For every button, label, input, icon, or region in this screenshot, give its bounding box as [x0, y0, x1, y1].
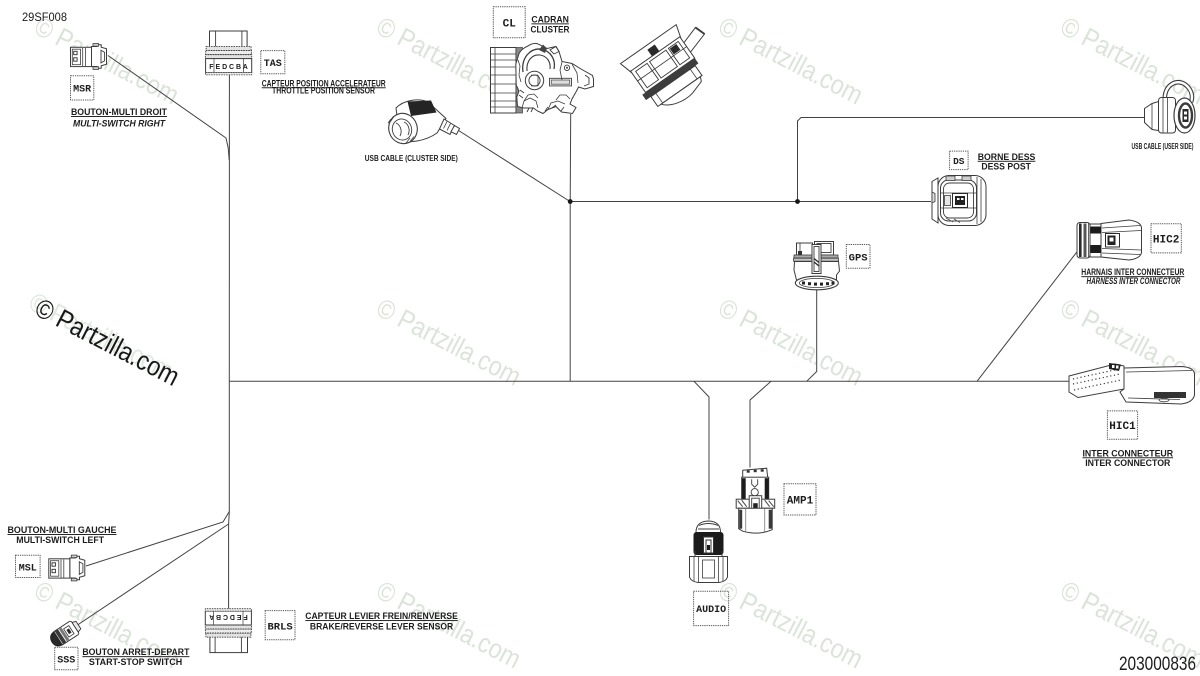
svg-text:F E D C B A: F E D C B A [209, 64, 248, 71]
svg-text:203000836: 203000836 [1119, 654, 1196, 675]
svg-text:BOUTON-MULTI DROIT: BOUTON-MULTI DROIT [71, 107, 167, 118]
svg-text:BRLS: BRLS [267, 621, 292, 633]
svg-text:AMP1: AMP1 [787, 496, 814, 508]
svg-text:HIC2: HIC2 [1153, 235, 1179, 247]
svg-text:USB CABLE (USER SIDE): USB CABLE (USER SIDE) [1132, 142, 1194, 151]
svg-text:GPS: GPS [849, 252, 868, 264]
svg-text:SSS: SSS [57, 655, 75, 666]
svg-text:INTER CONNECTOR: INTER CONNECTOR [1085, 458, 1170, 469]
svg-text:CLUSTER: CLUSTER [531, 24, 570, 35]
svg-text:MSR: MSR [73, 85, 91, 96]
svg-text:HARNESS INTER CONNECTOR: HARNESS INTER CONNECTOR [1087, 276, 1181, 287]
svg-text:CL: CL [503, 19, 517, 31]
svg-text:BRAKE/REVERSE LEVER SENSOR: BRAKE/REVERSE LEVER SENSOR [310, 621, 453, 632]
svg-text:HIC1: HIC1 [1109, 421, 1136, 433]
svg-text:DESS POST: DESS POST [981, 162, 1031, 173]
svg-text:TAS: TAS [264, 59, 282, 70]
svg-text:MSL: MSL [19, 563, 37, 574]
svg-text:AUDIO: AUDIO [696, 605, 726, 616]
svg-text:29SF008: 29SF008 [22, 10, 67, 24]
svg-text:MULTI-SWITCH RIGHT: MULTI-SWITCH RIGHT [73, 119, 166, 130]
svg-text:START-STOP SWITCH: START-STOP SWITCH [89, 657, 182, 668]
svg-text:THROTTLE POSITION SENSOR: THROTTLE POSITION SENSOR [272, 86, 375, 97]
svg-text:DS: DS [953, 156, 965, 167]
svg-text:USB CABLE (CLUSTER SIDE): USB CABLE (CLUSTER SIDE) [365, 154, 458, 163]
svg-text:MULTI-SWITCH LEFT: MULTI-SWITCH LEFT [16, 535, 104, 546]
